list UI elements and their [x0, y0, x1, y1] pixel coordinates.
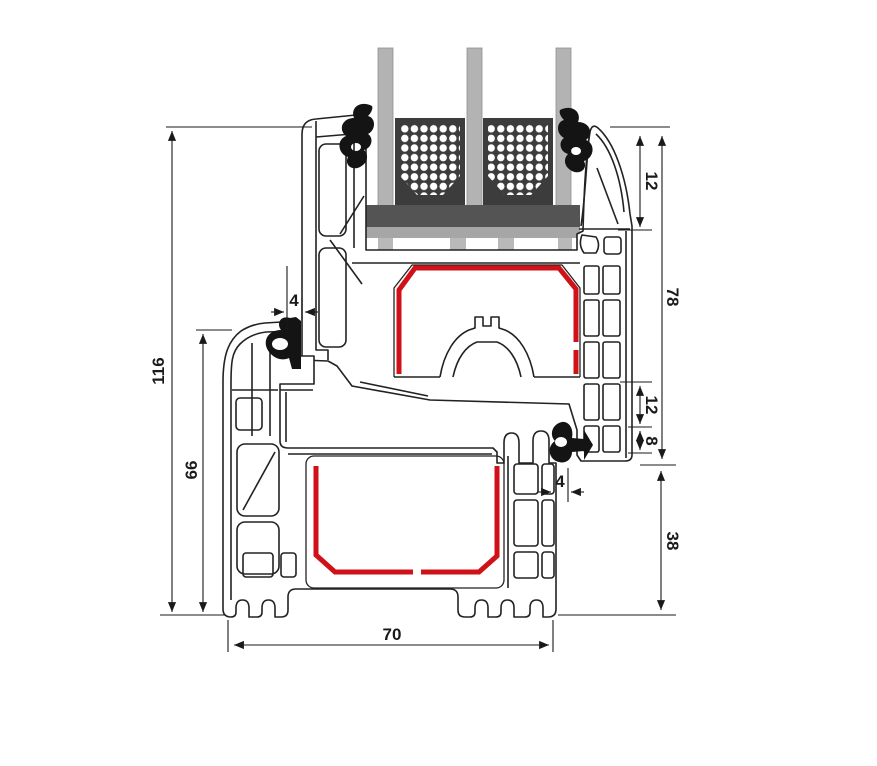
dim-label-total-height: 116 [149, 357, 168, 384]
dim-label-profile-depth: 70 [383, 625, 402, 644]
dim-label-glazing-edge: 12 [642, 172, 661, 191]
dim-label-sash-height: 78 [663, 288, 682, 307]
glazing-unit [362, 48, 580, 252]
dim-label-gasket-gap-bottom: 4 [555, 472, 565, 491]
dim-label-gasket-gap-top: 4 [289, 291, 299, 310]
desiccant-dots [488, 123, 548, 195]
dim-label-frame-height: 66 [182, 461, 201, 480]
glass-pane [467, 48, 482, 206]
dim-label-rebate-height: 12 [642, 396, 661, 415]
dim-label-step-height: 8 [642, 436, 661, 445]
desiccant-dots [400, 123, 460, 195]
dim-label-lower-face: 38 [663, 532, 682, 551]
glass-pane [378, 48, 393, 206]
window-profile-drawing: 116 66 4 12 78 12 8 4 38 70 [0, 0, 877, 766]
glazing-bridge [362, 205, 580, 227]
profile-section-svg: 116 66 4 12 78 12 8 4 38 70 [0, 0, 877, 766]
glazing-bridge-strip [362, 227, 580, 238]
